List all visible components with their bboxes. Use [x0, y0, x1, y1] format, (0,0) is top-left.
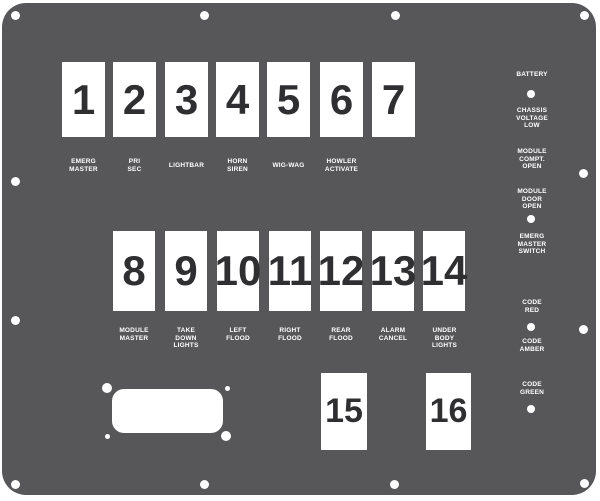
mounting-hole — [200, 11, 209, 20]
switch-label-14: UNDERBODYLIGHTS — [415, 327, 475, 350]
switch-button-8[interactable]: 8 — [113, 231, 155, 311]
connector-screw-hole — [221, 431, 231, 441]
mounting-hole — [391, 11, 400, 20]
switch-number: 11 — [268, 247, 312, 295]
switch-number: 9 — [174, 247, 197, 295]
indicator-label-module-compt-open: MODULECOMPT.OPEN — [497, 148, 567, 171]
connector-pilot-hole — [225, 386, 230, 391]
indicator-label-code-amber: CODEAMBER — [497, 338, 567, 353]
switch-label-10: LEFTFLOOD — [208, 327, 268, 342]
switch-button-11[interactable]: 11 — [269, 231, 311, 311]
indicator-label-battery: BATTERY — [497, 71, 567, 79]
switch-number: 2 — [123, 76, 146, 124]
switch-number: 14 — [421, 247, 468, 295]
connector-pilot-hole — [105, 434, 110, 439]
switch-number: 8 — [122, 247, 145, 295]
switch-button-2[interactable]: 2 — [113, 62, 156, 137]
mounting-hole — [579, 169, 588, 178]
switch-number: 7 — [382, 76, 405, 124]
indicator-label-emerg-master-switch: EMERGMASTERSWITCH — [497, 233, 567, 256]
mounting-hole — [11, 316, 20, 325]
switch-button-9[interactable]: 9 — [165, 231, 207, 311]
indicator-label-module-door-open: MODULEDOOROPEN — [497, 188, 567, 211]
switch-button-10[interactable]: 10 — [217, 231, 259, 311]
indicator-hole — [527, 90, 535, 98]
mounting-hole — [579, 325, 588, 334]
switch-button-13[interactable]: 13 — [372, 231, 414, 311]
mounting-hole — [200, 480, 209, 489]
switch-number: 1 — [72, 76, 95, 124]
switch-label-9: TAKEDOWNLIGHTS — [156, 327, 216, 350]
switch-number: 4 — [226, 76, 249, 124]
indicator-label-code-green: CODEGREEN — [497, 381, 567, 396]
switch-number: 3 — [175, 76, 198, 124]
switch-button-12[interactable]: 12 — [320, 231, 362, 311]
switch-button-1[interactable]: 1 — [62, 62, 105, 137]
switch-button-3[interactable]: 3 — [165, 62, 208, 137]
faceplate: 1 2 3 4 5 6 7 EMERGMASTER PRISEC LIGHTBA… — [2, 3, 596, 495]
switch-button-5[interactable]: 5 — [267, 62, 310, 137]
switch-button-14[interactable]: 14 — [423, 231, 465, 311]
switch-label-8: MODULEMASTER — [104, 327, 164, 342]
switch-number: 15 — [325, 392, 363, 431]
mounting-hole — [580, 11, 589, 20]
switch-button-7[interactable]: 7 — [372, 62, 415, 137]
indicator-hole — [527, 405, 535, 413]
mounting-hole — [390, 480, 399, 489]
switch-label-2: PRISEC — [105, 158, 165, 173]
switch-label-6: HOWLERACTIVATE — [312, 158, 372, 173]
indicator-label-chassis-voltage-low: CHASSISVOLTAGELOW — [497, 107, 567, 130]
mounting-hole — [580, 479, 589, 488]
switch-label-5: WIG-WAG — [259, 158, 319, 170]
switch-number: 5 — [277, 76, 300, 124]
switch-button-4[interactable]: 4 — [216, 62, 259, 137]
switch-button-6[interactable]: 6 — [320, 62, 363, 137]
mounting-hole — [11, 11, 20, 20]
connector-cutout — [112, 389, 223, 433]
switch-number: 6 — [330, 76, 353, 124]
switch-number: 10 — [215, 247, 262, 295]
switch-number: 16 — [430, 392, 468, 431]
indicator-label-code-red: CODERED — [497, 299, 567, 314]
connector-screw-hole — [102, 383, 112, 393]
switch-number: 12 — [318, 247, 365, 295]
indicator-hole — [527, 323, 535, 331]
switch-label-12: REARFLOOD — [311, 327, 371, 342]
switch-button-15[interactable]: 15 — [321, 373, 367, 450]
indicator-hole — [527, 215, 535, 223]
mounting-hole — [11, 177, 20, 186]
switch-button-16[interactable]: 16 — [426, 373, 471, 450]
mounting-hole — [11, 480, 20, 489]
switch-number: 13 — [370, 247, 417, 295]
